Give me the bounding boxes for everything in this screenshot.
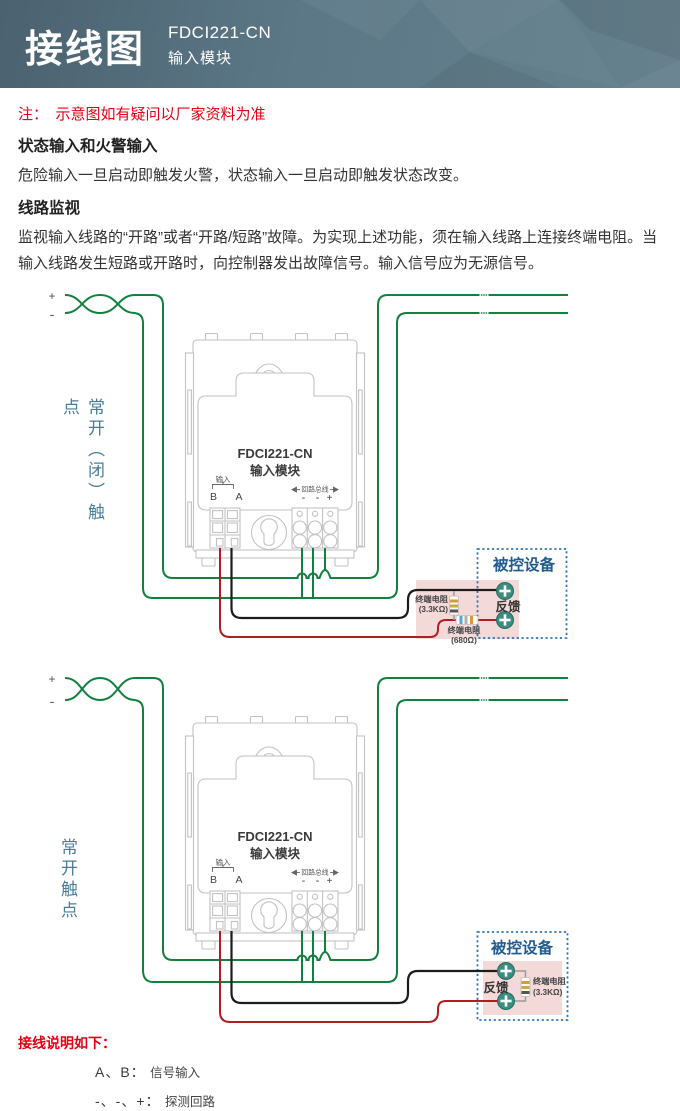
break-mark	[480, 292, 489, 298]
input-module-1	[186, 334, 365, 567]
eol-resistor-label-line2: (3.3KΩ)	[419, 605, 449, 614]
eol-resistor2-label-line1: 终端电阻	[533, 976, 567, 986]
feedback-wire-black-2	[232, 931, 498, 1003]
supply-plus-label-2: +	[48, 672, 55, 686]
legend-desc: 信号输入	[150, 1066, 200, 1080]
device-title-2: 被控设备	[491, 938, 554, 957]
feedback-screw-top-1	[497, 583, 514, 600]
supply-minus-label-2: -	[50, 693, 55, 709]
wiring-legend: 接线说明如下： A、B： 信号输入 -、-、+： 探测回路	[18, 1033, 518, 1111]
diagram-1: + - 被控设备	[48, 289, 568, 645]
supply-minus-label-1: -	[50, 306, 55, 322]
series-resistor-1	[456, 616, 478, 625]
feedback-screw-bottom-2	[498, 993, 515, 1010]
legend-title: 接线说明如下：	[18, 1033, 518, 1053]
break-mark	[480, 675, 489, 681]
eol-resistor-label-line1: 终端电阻	[415, 594, 449, 604]
legend-item-ab: A、B： 信号输入	[95, 1062, 518, 1082]
device-title-1: 被控设备	[493, 555, 556, 574]
legend-term: -、-、+：	[95, 1093, 161, 1109]
series-resistor-label-line1: 终端电阻	[448, 625, 482, 635]
feedback-screw-bottom-1	[497, 612, 514, 629]
wiring-diagrams: FDCI221-CN 输入模块 输入 B A 回路总线 - - +	[0, 0, 680, 1109]
series-resistor-label-line2: (680Ω)	[451, 636, 477, 645]
feedback-wire-red-2	[220, 931, 497, 1022]
break-mark	[480, 310, 489, 316]
input-module-2	[186, 717, 365, 950]
legend-desc: 探测回路	[165, 1095, 215, 1109]
contact-type-label-1: 常开（闭）触点	[57, 398, 107, 533]
eol-resistor-1	[450, 596, 459, 615]
break-mark	[480, 697, 489, 703]
diagram-2: + - 被控设备 反馈 终端电阻 (3.3KΩ)	[48, 672, 568, 1022]
feedback-label-1: 反馈	[495, 599, 521, 614]
legend-item-loop: -、-、+： 探测回路	[95, 1091, 518, 1111]
feedback-screw-top-2	[498, 963, 515, 980]
feedback-label-2: 反馈	[483, 980, 509, 995]
eol-resistor-2	[521, 978, 530, 997]
supply-plus-label-1: +	[48, 289, 55, 303]
eol-resistor2-label-line2: (3.3KΩ)	[533, 988, 563, 997]
legend-term: A、B：	[95, 1064, 146, 1080]
contact-type-label-2: 常开触点	[55, 838, 80, 938]
